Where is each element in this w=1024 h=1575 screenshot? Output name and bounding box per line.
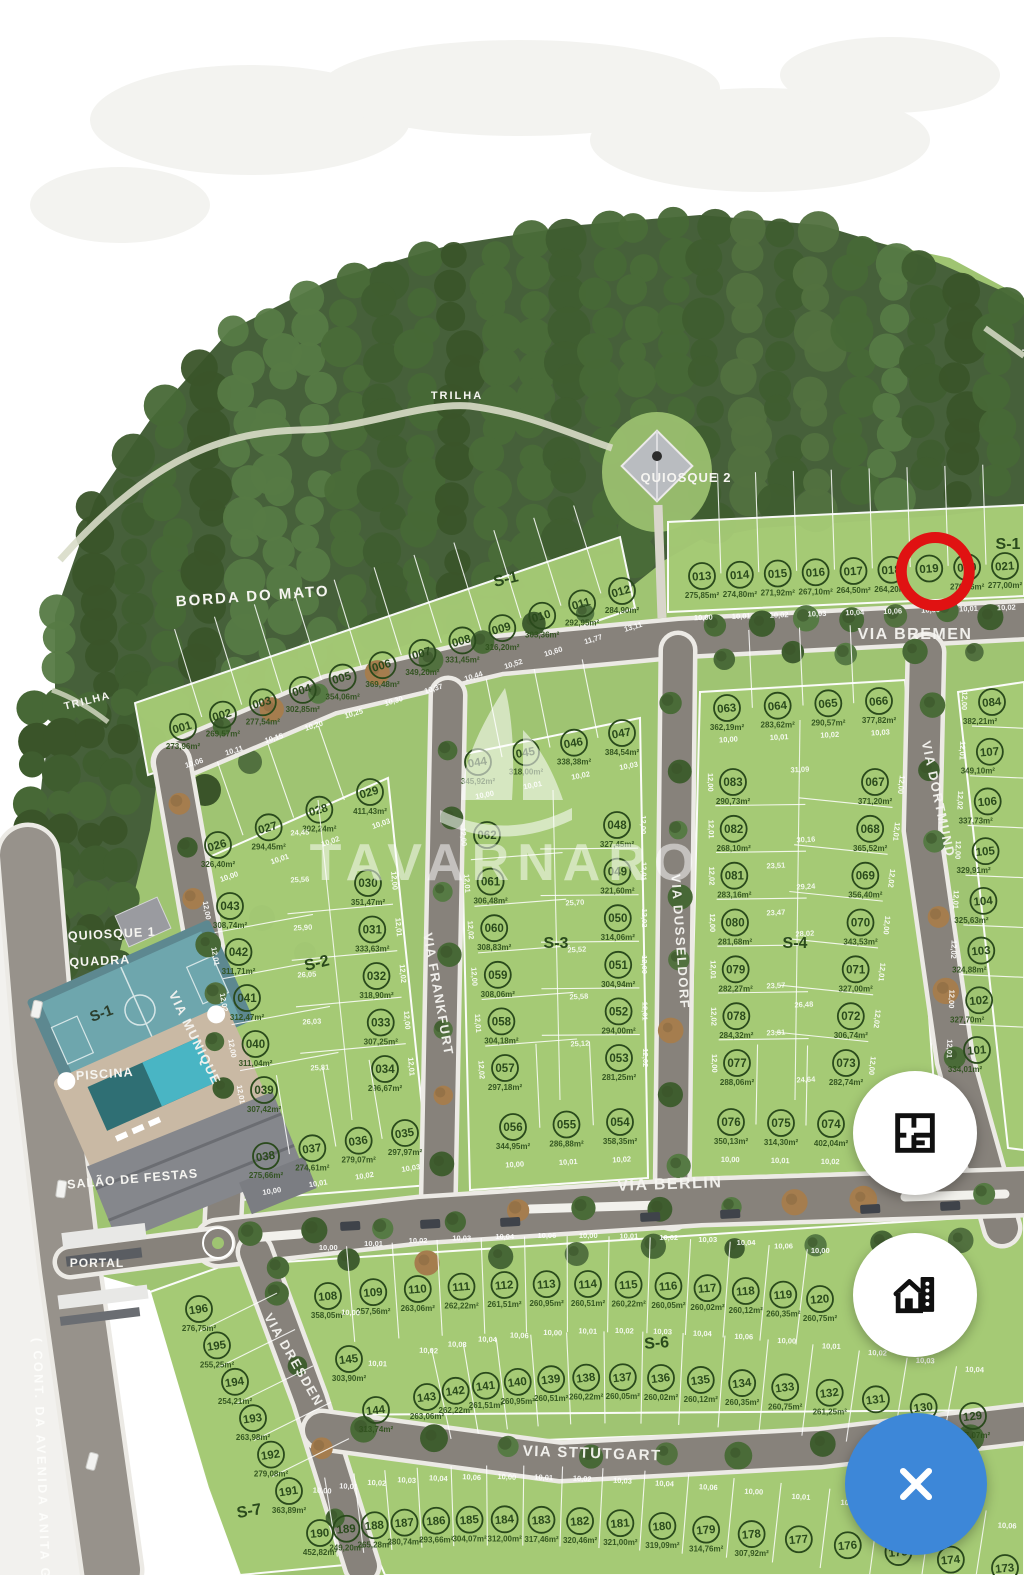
dimension-label: 10,06 [538,1231,557,1240]
dimension-label: 10,00 [543,1328,562,1338]
lot-area: 260,51m² [534,1394,569,1403]
lot-area: 275,85m² [685,591,720,600]
dimension-label: 10,06 [462,1472,481,1482]
lot-area: 314,76m² [689,1545,724,1554]
lot-area: 297,97m² [388,1148,423,1157]
lot-area: 262,22m² [444,1302,479,1311]
lot-number: 185 [459,1514,480,1528]
lot-number: 140 [507,1376,528,1390]
lot-area: 254,21m² [218,1397,253,1406]
dimension-label: 10,06 [774,1242,793,1251]
dimension-label: 12,00 [960,691,970,710]
lot-area: 255,25m² [200,1360,235,1369]
lot-area: 354,06m² [326,693,361,702]
lot-area: 279,07m² [342,1156,377,1165]
lot-number: 042 [229,947,248,959]
dimension-label: 10,03 [698,1235,717,1244]
lot-area: 308,06m² [481,990,516,999]
lot-area: 358,35m² [603,1137,638,1146]
lot-area: 318,90m² [359,991,394,1000]
dimension-label: 12,01 [958,741,968,760]
dimension-label: 12,02 [709,1007,718,1026]
dimension-label: 31,09 [790,765,809,775]
lot-area: 316,20m² [485,643,520,652]
lot-area: 313,74m² [359,1425,394,1434]
lot-number: 145 [338,1353,359,1367]
quiosque-2-label: QUIOSQUE 2 [641,470,732,485]
lot-number: 043 [220,901,239,913]
trilha-label-top: TRILHA [431,390,483,402]
dimension-label: 10,01 [339,1481,358,1491]
lot-area: 321,00m² [603,1538,638,1547]
dimension-label: 10,04 [429,1473,449,1483]
dimension-label: 12,01 [473,1014,483,1033]
lot-area: 260,75m² [803,1314,838,1323]
lot-number: 034 [375,1064,395,1076]
lot-area: 308,83m² [477,943,512,952]
lot-number: 065 [818,697,839,711]
lot-number: 115 [619,1279,639,1293]
lot-number: 066 [869,695,889,709]
portal-label: PORTAL [70,1256,124,1270]
lot-area: 363,89m² [272,1506,307,1515]
dimension-label: 24,64 [796,1074,816,1084]
lot-number: 177 [788,1533,808,1547]
lot-area: 260,22m² [569,1393,604,1402]
dimension-label: 12,02 [949,940,959,959]
dimension-label: 12,00 [469,967,479,986]
lot-number: 116 [658,1280,678,1294]
lot-number: 078 [727,1011,747,1023]
dimension-label: 10,02 [612,1154,631,1164]
dimension-label: 25,56 [290,875,309,885]
lot-area: 327,00m² [839,984,874,993]
lot-number: 017 [843,565,863,578]
dimension-label: 23,57 [766,981,785,991]
lot-area: 311,04m² [239,1059,273,1068]
dimension-label: 12,00 [710,1054,719,1073]
lot-number: 013 [692,570,712,583]
dimension-label: 10,00 [811,1246,830,1255]
dimension-label: 12,00 [706,773,715,792]
lot-area: 349,10m² [961,767,996,776]
lot-area: 260,02m² [644,1393,679,1402]
dimension-label: 10,04 [495,1232,515,1241]
lot-number: 050 [608,913,627,925]
lot-number: 059 [488,970,507,982]
lot-number: 063 [717,702,737,716]
lot-area: 283,62m² [761,721,796,730]
lot-number: 031 [363,925,383,937]
lot-area: 382,21m² [963,717,998,726]
lot-number: 132 [819,1387,840,1401]
dimension-label: 12,00 [708,913,717,932]
lot-number: 072 [841,1011,860,1023]
lot-area: 306,48m² [473,897,508,906]
dimension-label: 24,45 [290,828,309,838]
lot-area: 268,10m² [717,844,752,853]
lot-number: 056 [503,1122,522,1134]
dimension-label: 10,01 [559,1157,578,1167]
dimension-label: 23,51 [766,861,785,871]
lot-area: 311,71m² [222,967,256,976]
units-button[interactable] [853,1233,977,1357]
lot-area: 263,98m² [236,1433,271,1442]
lot-area: 312,47m² [230,1013,265,1022]
dimension-label: 12,00 [947,990,957,1009]
floor-plan-button[interactable] [853,1071,977,1195]
lot-number: 180 [652,1520,672,1534]
lot-area: 369,48m² [365,680,400,689]
dimension-label: 29,24 [796,881,816,891]
lot-number: 110 [408,1283,428,1297]
lot-area: 260,51m² [571,1299,606,1308]
lot-number: 052 [609,1006,628,1018]
lot-number: 141 [475,1380,496,1394]
dimension-label: 10,03 [871,727,890,737]
lot-area: 286,88m² [549,1140,584,1149]
dimension-label: 10,01 [771,1156,790,1165]
dimension-label: 10,00 [777,1336,796,1346]
lot-number: 032 [367,971,386,983]
house-building-icon [888,1268,942,1322]
lot-number: 181 [610,1517,631,1531]
lot-number: 014 [730,569,751,582]
lot-number: 103 [971,945,991,959]
lot-area: 271,92m² [761,589,796,598]
lot-number: 084 [982,696,1003,710]
lot-area: 260,12m² [729,1306,764,1315]
lot-area: 290,73m² [716,797,751,806]
dimension-label: 10,00 [505,1159,524,1169]
lot-number: 117 [697,1282,717,1296]
lot-area: 260,12m² [684,1395,719,1404]
lot-area: 263,06m² [401,1304,436,1313]
lot-number: 178 [741,1528,762,1542]
dimension-label: 10,06 [699,1482,718,1492]
lot-number: 071 [846,964,866,976]
lot-area: 282,74m² [829,1078,864,1087]
lot-area: 312,00m² [488,1534,523,1543]
section-label-s-4: S-4 [783,935,808,952]
lot-area: 377,82m² [862,716,897,725]
lot-number: 079 [726,964,745,976]
lot-area: 326,40m² [201,860,236,869]
dimension-label: 12,02 [955,791,965,810]
dimension-label: 10,00 [694,613,713,623]
dimension-label: 25,58 [569,992,588,1002]
dimension-label: 23,47 [766,908,785,918]
lot-number: 137 [612,1371,633,1385]
dimension-label: 12,02 [476,1060,486,1079]
lot-area: 260,05m² [651,1301,686,1310]
lot-area: 267,10m² [799,587,834,596]
lot-area: 284,32m² [719,1031,754,1040]
lot-area: 320,46m² [563,1536,598,1545]
lot-area: 325,63m² [954,916,989,925]
lot-number: 033 [371,1018,390,1030]
lot-number: 184 [494,1513,515,1527]
dimension-label: 10,01 [822,1341,841,1351]
lot-number: 174 [941,1554,962,1568]
lot-area: 317,46m² [524,1535,559,1544]
lot-area: 283,16m² [717,891,752,900]
lot-area: 327,70m² [950,1015,985,1024]
lot-number: 138 [576,1371,597,1385]
lot-number: 015 [768,568,789,581]
dimension-label: 10,04 [845,608,865,618]
lot-area: 338,38m² [557,758,592,767]
lot-area: 260,35m² [725,1398,760,1407]
lot-number: 113 [537,1278,557,1292]
lot-area: 356,40m² [848,891,883,900]
lot-number: 021 [995,560,1016,573]
close-button[interactable] [845,1413,987,1555]
lot-area: 402,04m² [814,1139,849,1148]
lot-area: 292,95m² [565,618,600,627]
dimension-label: 23,81 [766,1028,785,1038]
dimension-label: 10,06 [510,1331,529,1341]
dimension-label: 12,00 [402,1010,413,1029]
lot-area: 284,90m² [605,606,640,615]
lot-area: 349,20m² [405,668,440,677]
lot-area: 314,06m² [601,933,636,942]
lot-area: 269,57m² [206,730,241,739]
lot-area: 260,22m² [611,1300,646,1309]
lot-number: 083 [723,777,742,789]
dimension-label: 10,02 [659,1233,678,1242]
lot-number: 136 [650,1372,671,1386]
dimension-label: 10,01 [368,1359,387,1369]
lot-number: 182 [570,1515,590,1529]
lot-number: 133 [775,1381,796,1395]
dimension-label: 10,04 [737,1238,757,1247]
lot-area: 303,36m² [525,631,560,640]
dimension-label: 12,00 [640,955,649,974]
dimension-label: 12,02 [707,867,716,886]
lot-area: 260,02m² [690,1303,725,1312]
dimension-label: 10,03 [807,609,826,619]
lot-area: 307,42m² [247,1105,282,1114]
dimension-label: 10,01 [732,611,751,621]
dimension-label: 10,00 [719,734,738,744]
lot-number: 081 [725,871,745,883]
lot-area: 279,08m² [254,1470,289,1479]
lot-area: 277,00m² [988,581,1023,590]
lot-area: 280,74m² [387,1538,422,1547]
dimension-label: 12,00 [639,815,648,834]
lot-area: 337,73m² [959,816,994,825]
lot-number: 183 [531,1514,551,1528]
lot-number: 105 [975,845,996,859]
lot-number: 060 [485,923,504,935]
lot-number: 016 [805,567,825,580]
lot-number: 114 [578,1278,598,1292]
lot-area: 260,95m² [501,1397,536,1406]
dimension-label: 10,03 [916,1356,935,1366]
dimension-label: 26,03 [302,1017,321,1027]
lot-number: 144 [365,1404,386,1418]
lot-area: 307,25m² [364,1038,399,1047]
dimension-label: 10,02 [573,1474,592,1484]
lot-number: 074 [821,1119,841,1131]
lot-area: 281,68m² [718,938,753,947]
lot-area: 314,30m² [764,1138,799,1147]
lot-area: 275,66m² [249,1171,284,1180]
lot-number: 190 [310,1527,330,1541]
lot-area: 264,50m² [836,586,871,595]
dimension-label: 12,02 [398,964,409,983]
dimension-label: 10,02 [409,1236,428,1245]
lot-area: 281,25m² [602,1073,637,1082]
lot-number: 108 [318,1290,339,1304]
lot-area: 293,66m² [419,1536,454,1545]
lot-number: 119 [773,1289,793,1303]
dimension-label: 10,01 [534,1472,553,1482]
dimension-label: 10,06 [998,1521,1017,1531]
dimension-label: 12,02 [641,1048,650,1067]
dimension-label: 10,02 [367,1478,386,1488]
dimension-label: 10,00 [313,1486,332,1496]
dimension-label: 10,03 [397,1475,416,1485]
lot-area: 334,01m² [948,1065,983,1074]
lot-number: 073 [836,1058,855,1070]
lot-area: 257,56m² [356,1307,391,1316]
lot-area: 274,80m² [723,590,758,599]
dimension-label: 10,01 [769,732,788,742]
lot-area: 304,07m² [452,1535,487,1544]
dimension-label: 10,00 [497,1472,516,1482]
lot-number: 112 [494,1279,514,1293]
lot-number: 019 [919,563,939,576]
dimension-label: 10,02 [820,730,839,740]
lot-number: 070 [851,918,870,930]
dimension-label: 10,02 [419,1346,438,1356]
lot-number: 109 [363,1286,383,1300]
lot-number: 135 [690,1374,711,1388]
dimension-label: 10,02 [821,1157,840,1166]
section-label-s-6: S-6 [644,1334,670,1353]
lot-number: 101 [967,1044,988,1058]
lot-number: 187 [394,1517,414,1531]
lot-number: 040 [246,1039,265,1051]
section-label-s-3: S-3 [544,935,569,952]
dimension-label: 12,01 [709,960,718,979]
dimension-label: 12,01 [393,917,404,936]
dimension-label: 12,02 [466,920,476,939]
lot-area: 350,13m² [714,1137,749,1146]
lot-area: 302,85m² [286,705,321,714]
dimension-label: 10,00 [721,1155,740,1164]
dimension-label: 10,01 [364,1239,383,1248]
lot-number: 104 [973,895,994,909]
dimension-label: 10,02 [770,610,789,620]
lot-area: 362,19m² [710,723,745,732]
lot-number: 107 [980,746,1000,760]
dimension-label: 12,01 [707,820,716,839]
lot-number: 069 [856,871,875,883]
lot-area: 273,96m² [166,742,201,751]
dimension-label: 25,12 [570,1039,589,1049]
dimension-label: 10,00 [744,1487,763,1497]
lot-area: 329,91m² [956,866,991,875]
dimension-label: 10,01 [791,1492,810,1502]
dimension-label: 25,70 [565,898,584,908]
lot-number: 120 [810,1293,830,1307]
dimension-label: 10,03 [448,1339,467,1349]
lot-area: 365,52m² [853,844,888,853]
dimension-label: 12,01 [945,1039,955,1058]
street-label-via-bremen: VIA BREMEN [858,626,973,643]
floor-plan-icon [889,1107,941,1159]
lot-number: 068 [861,824,881,836]
lot-area: 303,90m² [332,1374,367,1383]
close-x-icon [888,1456,944,1512]
dimension-label: 10,02 [615,1326,634,1336]
lot-number: 142 [445,1385,466,1399]
lot-area: 344,95m² [496,1142,531,1151]
lot-number: 111 [452,1281,471,1295]
dimension-label: 26,48 [794,1000,813,1010]
lot-number: 188 [364,1519,385,1533]
dimension-label: 10,06 [734,1332,753,1342]
lot-number: 179 [696,1524,716,1538]
dimension-label: 12,01 [951,890,961,909]
lot-number: 076 [721,1117,740,1129]
lot-area: 306,74m² [834,1031,869,1040]
lot-number: 118 [736,1285,756,1299]
lot-number: 054 [610,1117,630,1129]
lot-number: 075 [771,1118,791,1130]
lot-number: 131 [865,1393,886,1407]
lot-area: 324,88m² [952,966,987,975]
lot-area: 282,27m² [719,984,754,993]
dimension-label: 10,03 [613,1476,632,1486]
dimension-label: 30,16 [796,835,815,845]
dimension-label: 10,00 [319,1243,338,1252]
site-plan-viewer: 001273,96m²10,06002269,57m²10,11003277,5… [0,0,1024,1575]
lot-area: 277,54m² [246,717,281,726]
lot-number: 077 [727,1058,746,1070]
lot-area: 261,25m² [813,1408,848,1417]
lot-number: 057 [495,1063,514,1075]
lot-area: 294,45m² [252,842,287,851]
lot-number: 102 [969,994,989,1008]
lot-number: 129 [962,1410,983,1424]
lot-area: 260,05m² [606,1392,641,1401]
lot-area: 319,09m² [645,1541,680,1550]
dimension-label: 25,81 [310,1063,329,1073]
lot-number: 082 [724,824,743,836]
dimension-label: 10,00 [579,1231,598,1240]
lot-number: 067 [865,777,884,789]
dimension-label: 25,52 [567,945,586,955]
section-label-s-1: S-1 [996,536,1021,553]
lot-number: 186 [426,1515,446,1529]
lot-number: 080 [725,918,744,930]
lot-number: 041 [237,993,257,1005]
dimension-label: 10,06 [883,606,902,616]
lot-area: 333,63m² [355,945,390,954]
lot-area: 371,20m² [858,797,893,806]
dimension-label: 10,04 [693,1329,713,1339]
dimension-label: 10,04 [965,1365,985,1375]
lot-number: 106 [977,796,997,810]
lot-number: 189 [336,1523,356,1537]
lot-area: 308,74m² [213,921,248,930]
lot-number: 048 [607,820,627,832]
lot-area: 274,61m² [295,1163,330,1172]
